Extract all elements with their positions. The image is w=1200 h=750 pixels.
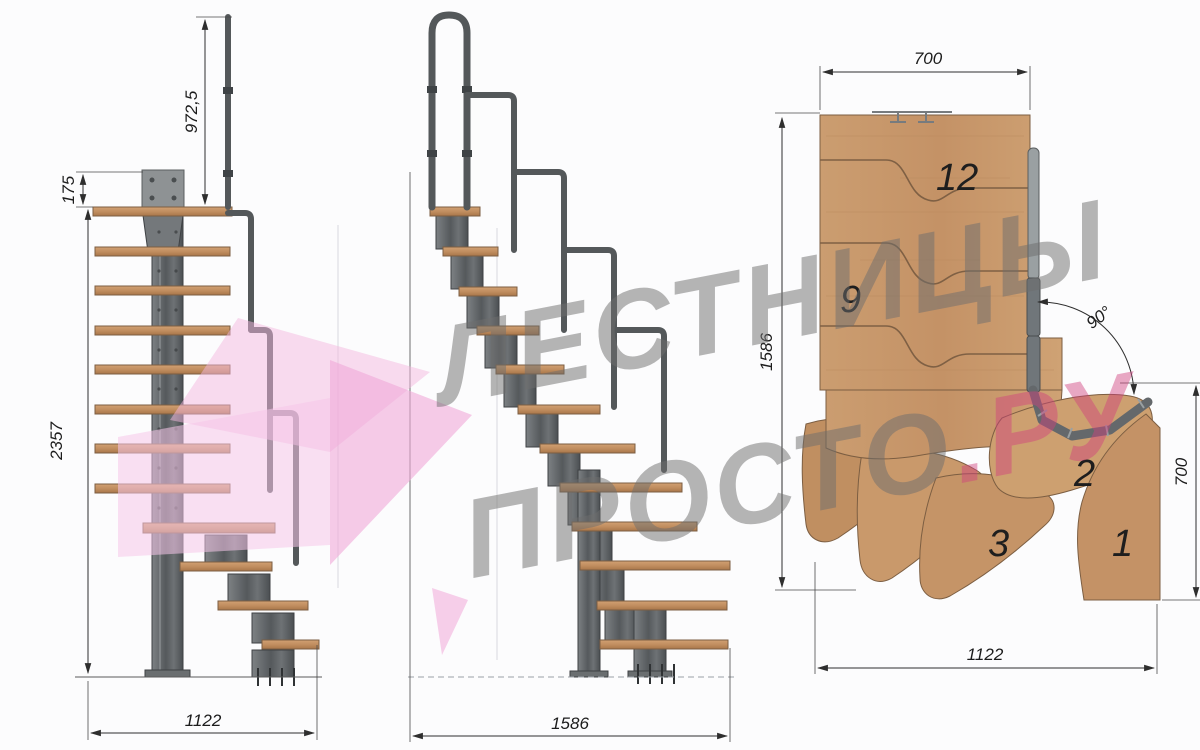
wall-mount-plate bbox=[142, 170, 184, 208]
tread bbox=[218, 601, 308, 610]
dim-label-plan-top-width: 700 bbox=[914, 49, 943, 68]
dim-label-turn-angle: 90° bbox=[1083, 302, 1115, 333]
dimension-total-height: 2357 bbox=[47, 210, 88, 673]
plan-tread-number-3: 3 bbox=[988, 523, 1009, 565]
dim-label-side-run: 1122 bbox=[185, 711, 222, 730]
tread bbox=[443, 247, 498, 256]
tread bbox=[262, 640, 319, 649]
tread bbox=[600, 640, 728, 649]
dimension-plate-offset: 175 bbox=[59, 172, 143, 207]
dim-label-plate-offset: 175 bbox=[59, 175, 78, 204]
watermark-text: ЛЕСТНИЦЫ ПРОСТО.РУ bbox=[417, 176, 1153, 602]
staircase-drawing: 972,5 175 2357 1122 bbox=[0, 0, 1200, 750]
tread bbox=[430, 207, 480, 216]
tread bbox=[95, 247, 230, 256]
dim-label-rail-height: 972,5 bbox=[182, 90, 201, 133]
tread bbox=[95, 326, 230, 335]
column-base-plate bbox=[145, 670, 190, 677]
tread bbox=[93, 207, 232, 216]
plan-view: 12 9 3 2 1 bbox=[757, 49, 1200, 674]
tread bbox=[180, 562, 272, 571]
tread bbox=[597, 601, 727, 610]
dim-label-total-height: 2357 bbox=[47, 422, 66, 461]
front-column-base bbox=[570, 671, 608, 677]
dim-label-plan-bottom-width: 1122 bbox=[967, 645, 1004, 664]
watermark: ЛЕСТНИЦЫ ПРОСТО.РУ bbox=[118, 176, 1153, 655]
dimension-plan-top-width: 700 bbox=[820, 49, 1030, 110]
handrail-hoop bbox=[432, 15, 467, 207]
dim-label-plan-right-run: 700 bbox=[1172, 457, 1191, 486]
plan-tread-number-12: 12 bbox=[936, 157, 978, 199]
front-base-module bbox=[634, 602, 666, 673]
tread bbox=[95, 286, 230, 295]
dim-label-front-run: 1586 bbox=[551, 714, 589, 733]
plan-tread-number-1: 1 bbox=[1112, 523, 1133, 565]
